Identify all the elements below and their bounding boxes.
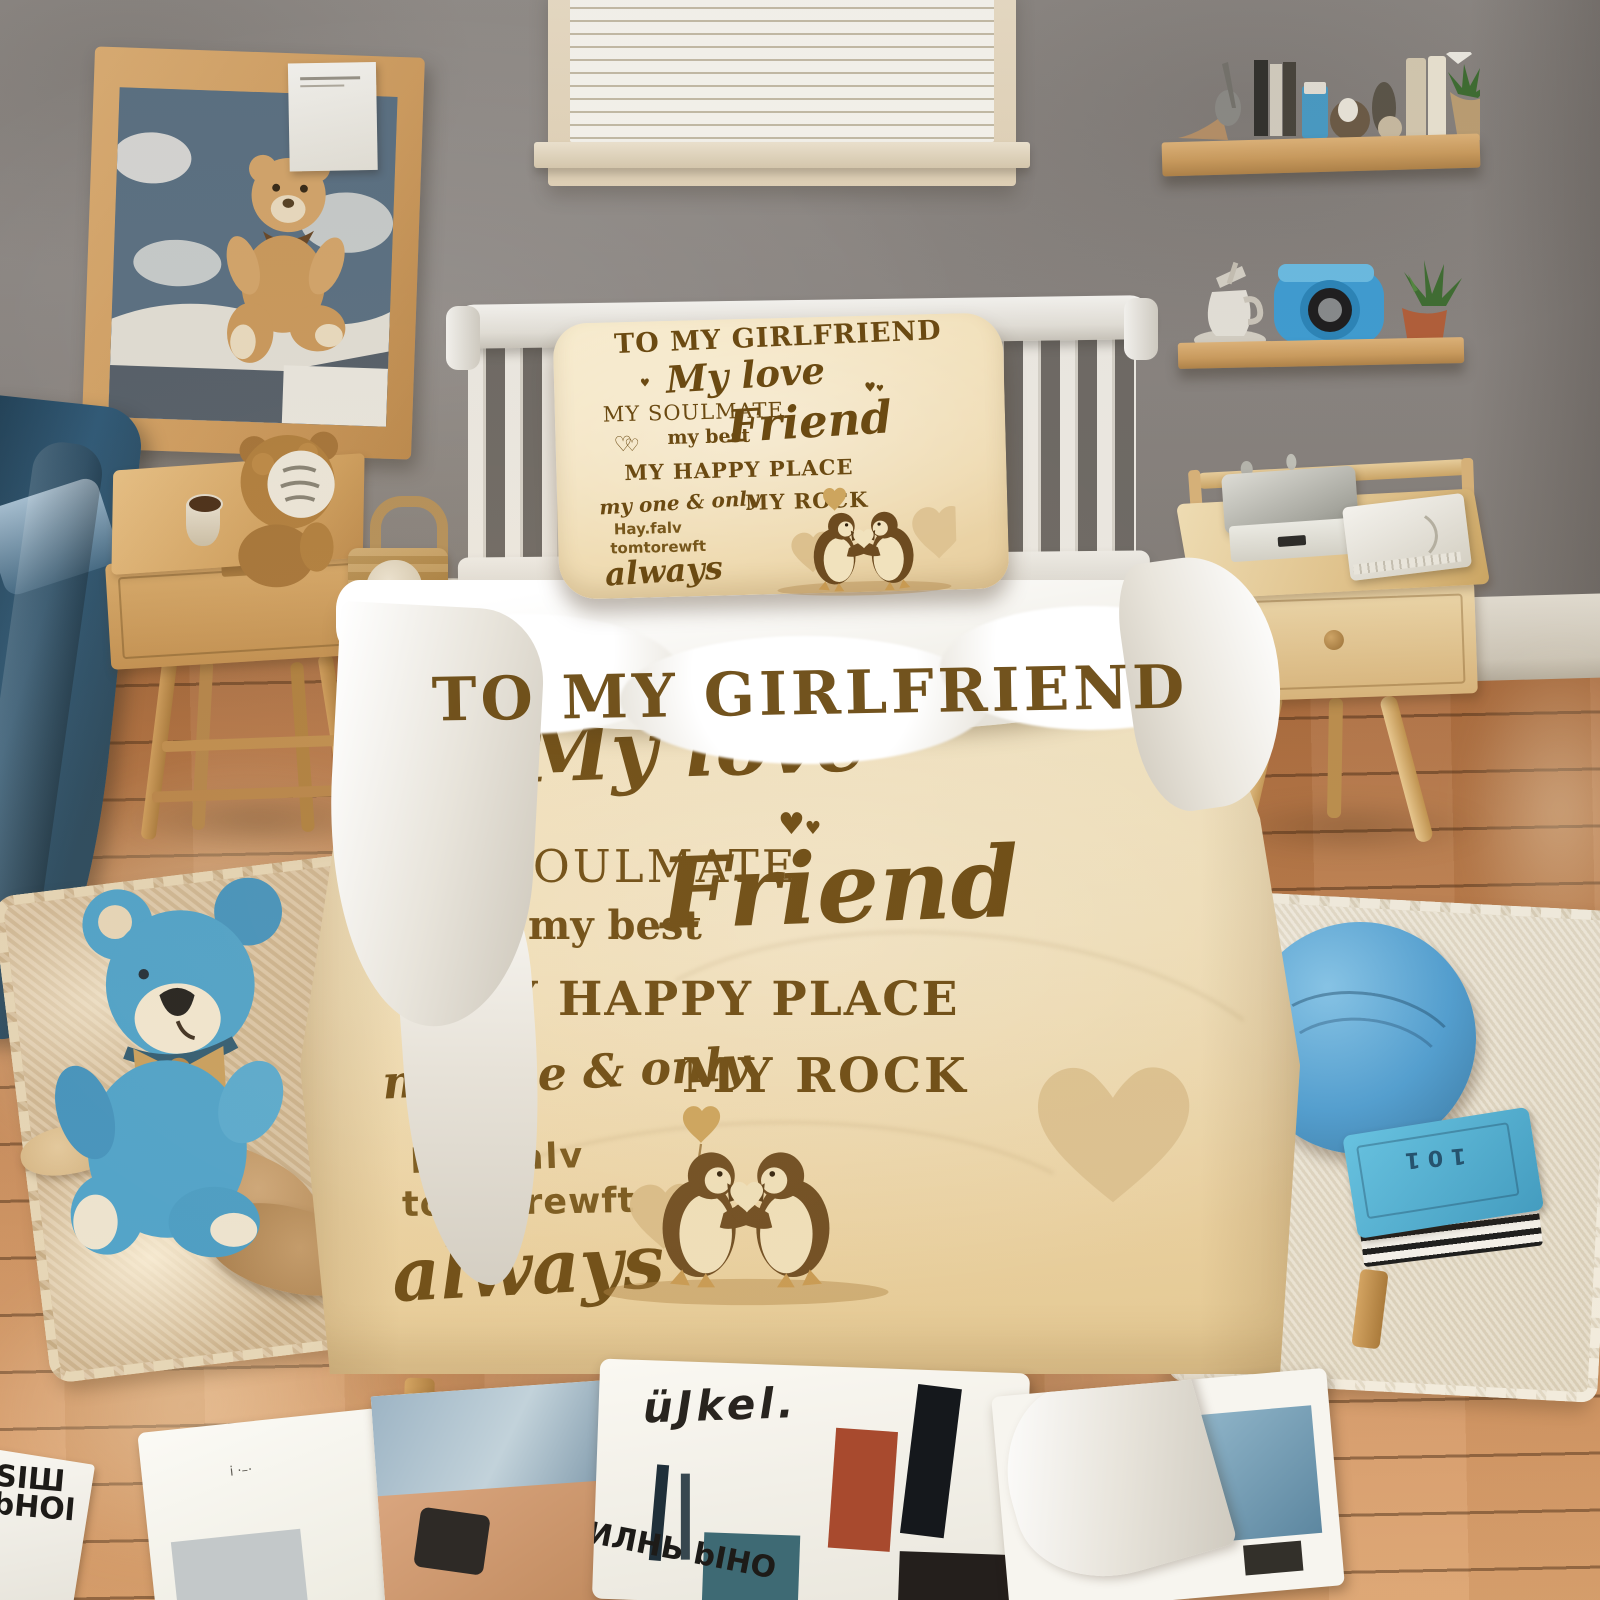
coffee-surface [187,494,223,514]
blue-speaker[interactable] [1274,264,1384,344]
magazine-dark-shape [413,1507,491,1576]
radio-front [1229,518,1355,563]
window-sill [534,142,1030,168]
magazine-dark-photo [898,1551,1020,1600]
magazine-photo-figure [378,1480,624,1600]
notebook-cover-text: 1 0 1 [1404,1143,1467,1170]
teddy-poster [81,46,425,459]
vintage-radio[interactable] [1221,461,1361,566]
pillow-line-friend: Friend [726,394,893,449]
potted-plant [1402,260,1462,344]
magazine-photo-block [171,1529,308,1600]
heart-outline-icon: ♡ [624,436,640,456]
wall-shelf-lower [1178,248,1470,366]
duvet-line-to: TO MY GIRLFRIEND [420,657,1201,731]
poster-note [288,62,378,172]
magazine-page-right [371,1380,624,1600]
penguin-couple-illustration [596,1090,896,1315]
pillow: TO MY GIRLFRIEND ♥ My love ♥♥ MY SOULMAT… [552,312,1009,600]
pillow-line-always: always [604,552,724,591]
penguin-right [732,1152,829,1287]
radio-knob [1286,454,1297,471]
magazine-dark-column [900,1384,962,1538]
pillow-line-garble1: Hay.falv [614,521,682,538]
pillow-line-one: my one & only [599,488,759,518]
magazine-spread-b[interactable]: üJkel. ИЛНЬ bІНО [592,1359,1030,1600]
tan-heart [1028,1054,1198,1214]
magazine-dark-bit [1243,1541,1303,1576]
headboard-post [446,306,480,370]
wall-shelf-upper [1162,52,1480,172]
pillow-double-heart-icon: ♡♡ [613,434,640,456]
radio-slot [1278,535,1307,547]
magazine-tiny-caption: i ·–· [229,1463,253,1478]
nightstand-leg [1327,698,1343,818]
pillow-hearts-left: ♥ [640,377,650,388]
window [548,0,1016,186]
nightstand-rail [162,735,342,752]
magazine-page-left: i ·–· [137,1409,395,1600]
magazine-spread-c[interactable] [991,1368,1345,1600]
note-text-lines [300,76,360,80]
magazine-curled-page [991,1368,1238,1600]
notebook-cover-frame [1356,1122,1520,1219]
magazine-handwritten-title: üJkel. [642,1382,798,1429]
brown-teddy-toy[interactable] [228,426,354,594]
nightstand-leg [1379,694,1434,843]
magazine-scribble-text: ЅІШ bНОl [0,1463,79,1525]
white-book[interactable] [1342,493,1472,581]
heart-icon: ♥ [640,376,650,389]
magazine-red-block [828,1428,898,1552]
note-text-lines [300,84,344,87]
window-blinds[interactable] [570,0,994,142]
pillow-line-happy: MY HAPPY PLACE [624,456,854,483]
duvet-line-friend: Friend [658,834,1020,944]
headboard-post [1124,298,1158,360]
pillow-penguin-couple-illustration [769,481,958,598]
bedroom-scene: 1 0 1 [0,0,1600,1600]
pillow-line-love: My love [665,352,826,399]
blue-teddy-bear[interactable] [42,856,342,1262]
coffee-cup[interactable] [186,498,220,546]
